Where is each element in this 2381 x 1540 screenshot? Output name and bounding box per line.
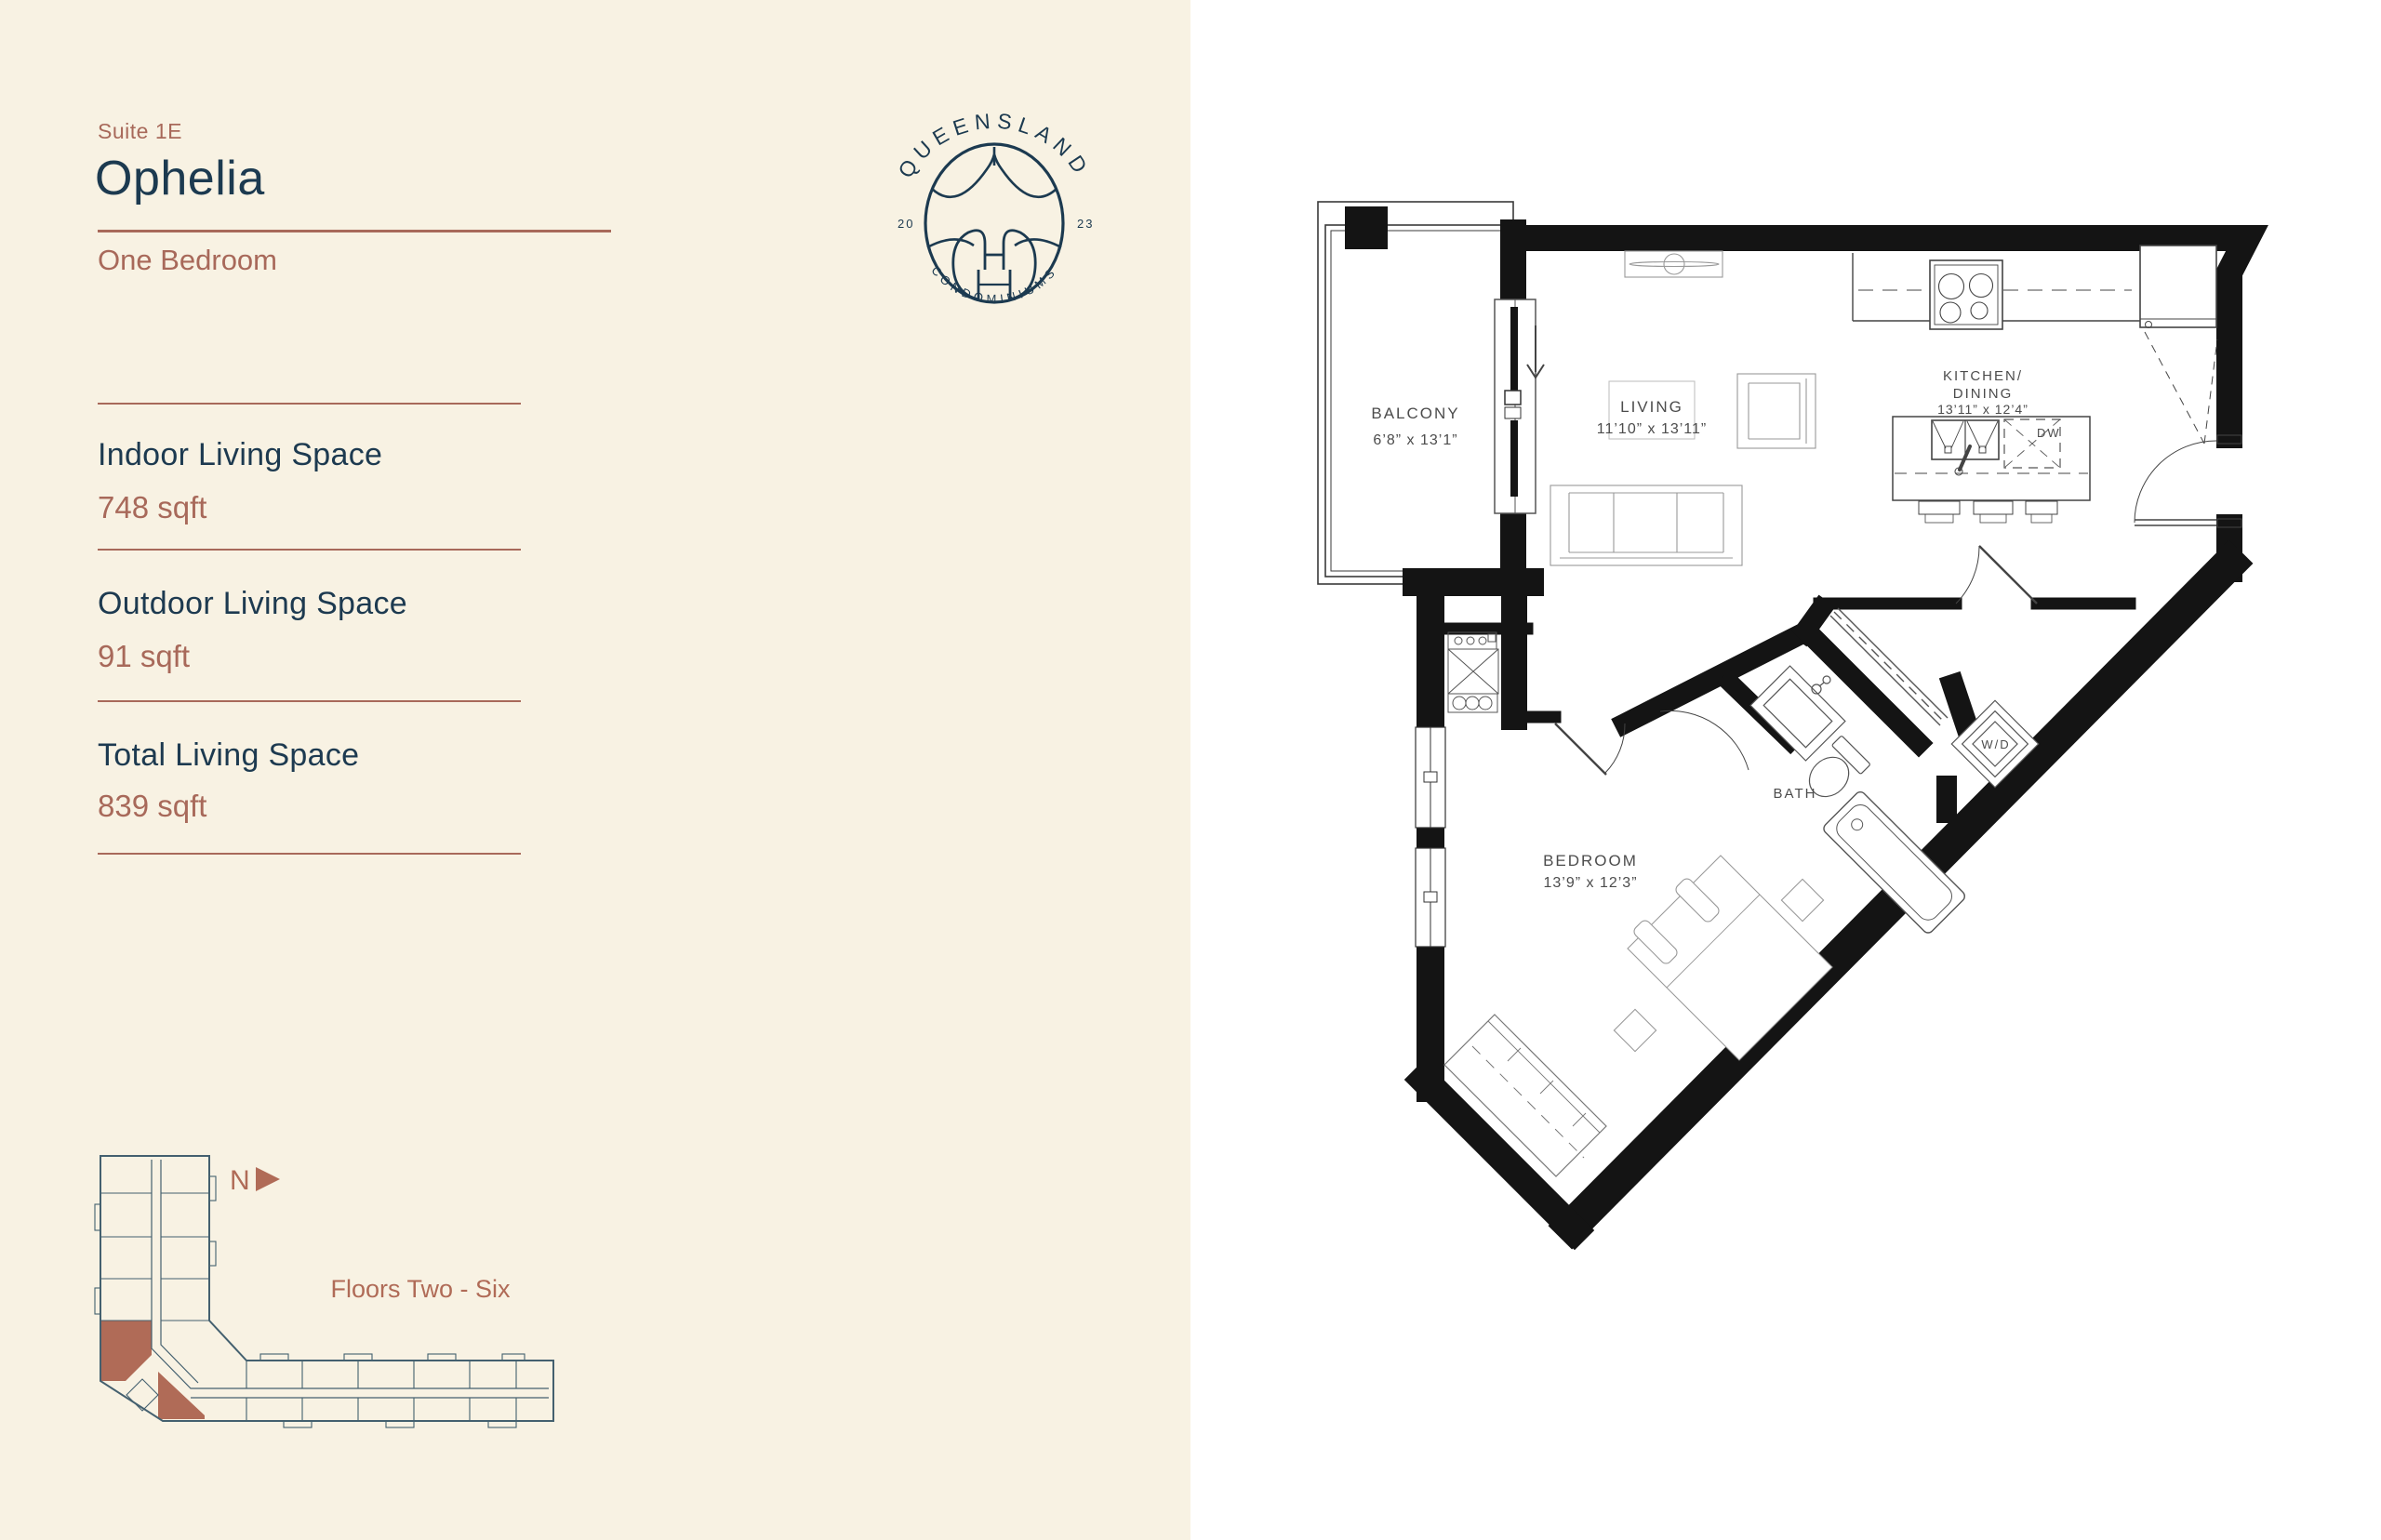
floorplan-drawing: DW <box>1190 0 2381 1540</box>
bedroom-label: BEDROOM <box>1543 852 1638 870</box>
entry-door <box>2135 435 2241 527</box>
bed <box>1614 856 1832 1060</box>
kitchen-label-line2: DINING <box>1953 386 2014 402</box>
floorplan-panel: DW <box>1190 0 2381 1540</box>
logo-year-right: 23 <box>1077 217 1094 231</box>
living-label: LIVING <box>1620 398 1683 416</box>
balcony-dims: 6’8” x 13’1” <box>1373 432 1457 448</box>
stat-outdoor-value: 91 sqft <box>98 639 190 674</box>
kitchen-dims: 13’11” x 12’4” <box>1937 402 2029 417</box>
balcony-railing <box>1318 202 1513 584</box>
balcony-sliding-door <box>1495 299 1536 513</box>
balcony-column <box>1345 206 1388 249</box>
stat-indoor-label: Indoor Living Space <box>98 437 382 473</box>
stats-divider-2 <box>98 549 521 551</box>
queensland-logo: QUEENSLAND CONDOMINIUMS 20 23 <box>890 73 1104 363</box>
sofa <box>1550 485 1742 565</box>
bedroom-door <box>1555 724 1625 775</box>
bath-door-swing <box>1660 710 1749 770</box>
bath-label: BATH <box>1774 786 1817 802</box>
north-arrow-icon <box>256 1167 280 1191</box>
bath-vanity <box>1750 666 1845 761</box>
stats-divider-4 <box>98 853 521 855</box>
balcony-label: BALCONY <box>1371 405 1459 422</box>
logo-emblem <box>925 144 1063 302</box>
stat-indoor-value: 748 sqft <box>98 490 206 525</box>
stats-divider-3 <box>98 700 521 702</box>
laundry-label: W/D <box>1981 737 2010 751</box>
stat-total-label: Total Living Space <box>98 737 359 774</box>
building-key-plan: N Floors Two - Six <box>88 1148 609 1455</box>
stat-outdoor-label: Outdoor Living Space <box>98 586 407 622</box>
tv-console <box>1625 251 1723 277</box>
suite-number-label: Suite 1E <box>98 119 182 144</box>
floorplan-brochure-page: Suite 1E Ophelia One Bedroom Indoor Livi… <box>0 0 2381 1540</box>
stat-total-value: 839 sqft <box>98 789 206 824</box>
left-info-panel: Suite 1E Ophelia One Bedroom Indoor Livi… <box>0 0 1190 1540</box>
living-dims: 11’10” x 13’11” <box>1597 421 1707 437</box>
logo-year-left: 20 <box>898 217 914 231</box>
kitchen-sink <box>1932 420 1999 475</box>
kitchen-label-line1: KITCHEN/ <box>1943 368 2023 384</box>
stats-divider-1 <box>98 403 521 405</box>
stove <box>1930 260 2002 329</box>
dishwasher-label: DW <box>2037 426 2061 440</box>
bedroom-dims: 13’9” x 12’3” <box>1543 875 1637 891</box>
utility-closet <box>1448 632 1498 712</box>
fridge <box>2140 246 2217 444</box>
bath-hall-door <box>1956 546 2037 604</box>
title-divider <box>98 230 611 232</box>
floors-label: Floors Two - Six <box>330 1275 511 1303</box>
keyplan-highlighted-unit <box>100 1321 205 1419</box>
bedroom-wardrobe <box>1444 1015 1606 1176</box>
suite-type-label: One Bedroom <box>98 244 277 277</box>
north-label: N <box>230 1165 250 1196</box>
suite-name-title: Ophelia <box>95 151 265 206</box>
armchair <box>1737 374 1816 448</box>
